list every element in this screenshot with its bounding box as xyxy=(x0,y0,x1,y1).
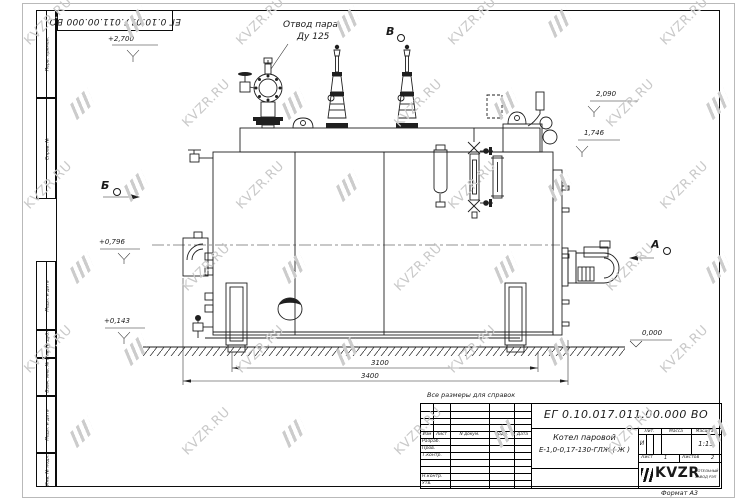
tb-line xyxy=(646,434,647,454)
tb-sheet-value: 1 xyxy=(664,455,667,461)
tb-header-izm: Изм xyxy=(421,432,433,437)
tb-sheets-label: Листов xyxy=(682,455,699,460)
frame-column-inv-podl: Инв. № подл. xyxy=(36,453,56,487)
doc-number-flipped-box: ЕГ 0.10.017.011.00.000 ВО xyxy=(57,10,173,31)
callout-steam-outlet-line2: Ду 125 xyxy=(297,32,329,42)
tb-line xyxy=(421,466,531,467)
tb-line xyxy=(489,404,490,488)
tb-scale-value: 1:15 xyxy=(691,440,721,448)
tb-line xyxy=(653,434,654,454)
tb-line xyxy=(638,428,639,488)
kvzr-logo-bars-icon xyxy=(641,468,653,482)
tb-row-tkontr: Т.контр. xyxy=(422,453,442,458)
tb-name-line2: Е-1,0-0,17-130-ГЛЖ ( Ж ) xyxy=(531,446,638,454)
tb-row-utv: Утв. xyxy=(422,481,432,486)
callout-steam-outlet-line1: Отвод пара xyxy=(283,20,338,30)
view-label-v: В xyxy=(386,25,394,38)
reference-note: Все размеры для справок xyxy=(427,391,515,399)
tb-scale-label: Масштаб xyxy=(691,429,721,434)
elevation-0796: +0,796 xyxy=(99,238,125,246)
frame-column-podp-data-1: Подп. и дата xyxy=(36,261,56,330)
frame-column-inv-dubl: Инв. № дубл. xyxy=(36,330,56,358)
tb-line xyxy=(638,462,721,463)
dimension-3100: 3100 xyxy=(371,359,389,367)
tb-sheet-label: Лист xyxy=(641,455,653,460)
tb-line xyxy=(421,418,531,419)
elevation-0000: 0,000 xyxy=(642,329,662,337)
tb-line xyxy=(638,434,721,435)
view-label-b: Б xyxy=(101,179,109,192)
tb-name-line1: Котел паровой xyxy=(531,433,638,442)
dimension-3400: 3400 xyxy=(361,372,379,380)
elevation-1746: 1,746 xyxy=(584,129,604,137)
tb-line xyxy=(450,404,451,488)
frame-column-vzam-inv: Взам. инв. № xyxy=(36,358,56,396)
elevation-0143: +0,143 xyxy=(104,317,130,325)
tb-lit-value: И xyxy=(638,440,646,447)
tb-header-list: Лист xyxy=(433,432,450,437)
tb-line xyxy=(679,454,680,462)
tb-sheets-value: 2 xyxy=(711,455,714,461)
frame-column-sprav-no: Справ. № xyxy=(36,98,56,199)
tb-line xyxy=(531,468,638,469)
tb-line xyxy=(421,411,531,412)
tb-row-razrab: Разраб. xyxy=(422,439,440,444)
tb-row-prov: Пров. xyxy=(422,446,435,451)
tb-line xyxy=(421,445,531,446)
tb-mass-label: Масса xyxy=(661,429,691,434)
tb-lit-label: Лит. xyxy=(638,429,661,434)
tb-header-data: Дата xyxy=(514,432,531,437)
elevation-2700: +2,700 xyxy=(108,35,134,43)
tb-line xyxy=(421,480,531,481)
view-marker-circle-b xyxy=(113,188,121,196)
kvzr-logo-sub2: ЗАВОД РЭП xyxy=(695,475,716,479)
view-marker-circle-v xyxy=(397,34,405,42)
drawing-sheet: ЕГ 0.10.017.011.00.000 ВО Перв. примен. … xyxy=(0,0,750,500)
tb-row-nkontr: Н.контр. xyxy=(422,474,443,479)
title-block: ЕГ 0.10.017.011.00.000 ВО Котел паровой … xyxy=(420,403,722,489)
view-marker-circle-a xyxy=(663,247,671,255)
frame-column-podp-data-2: Подп. и дата xyxy=(36,396,56,453)
tb-header-podp: Подп. xyxy=(489,432,514,437)
format-label: Формат А3 xyxy=(661,489,698,497)
elevation-2090: 2,090 xyxy=(596,90,616,98)
tb-header-ndokum: N докум. xyxy=(450,432,489,437)
kvzr-logo-sub1: КОТЕЛЬНЫЙ xyxy=(695,469,718,473)
tb-line xyxy=(514,404,515,488)
doc-number-flipped: ЕГ 0.10.017.011.00.000 ВО xyxy=(49,16,181,26)
tb-line xyxy=(421,459,531,460)
kvzr-logo-text: KVZR xyxy=(655,465,700,481)
tb-doc-number: ЕГ 0.10.017.011.00.000 ВО xyxy=(531,408,721,421)
tb-line xyxy=(421,424,531,425)
view-label-a: А xyxy=(651,238,660,251)
